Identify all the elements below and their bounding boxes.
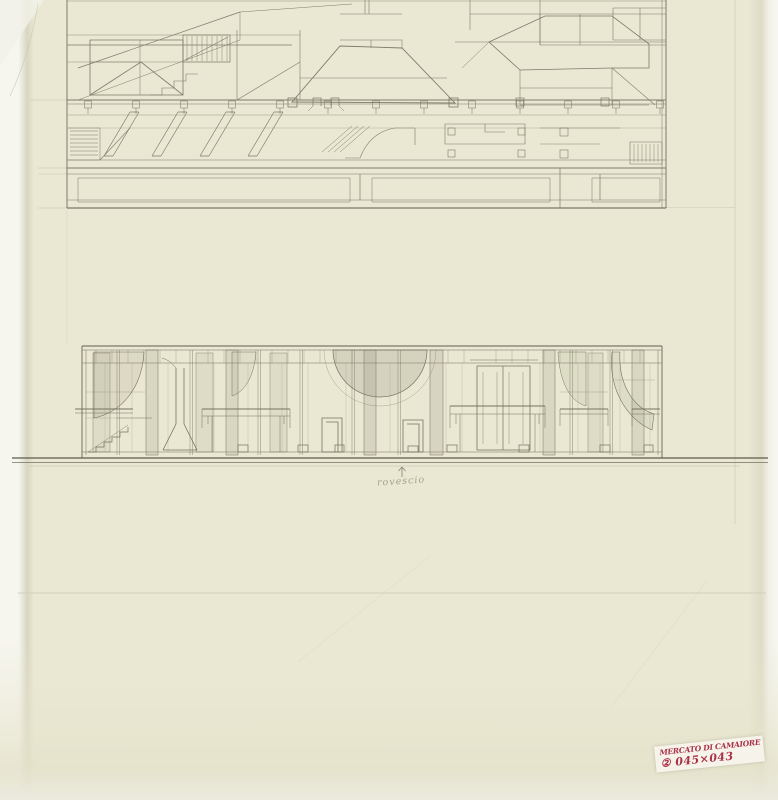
tracing-paper-sheet: rovescio MERCATO DI CAMAIORE ② 045×043 xyxy=(0,0,778,800)
architectural-drawing-canvas xyxy=(0,0,778,800)
